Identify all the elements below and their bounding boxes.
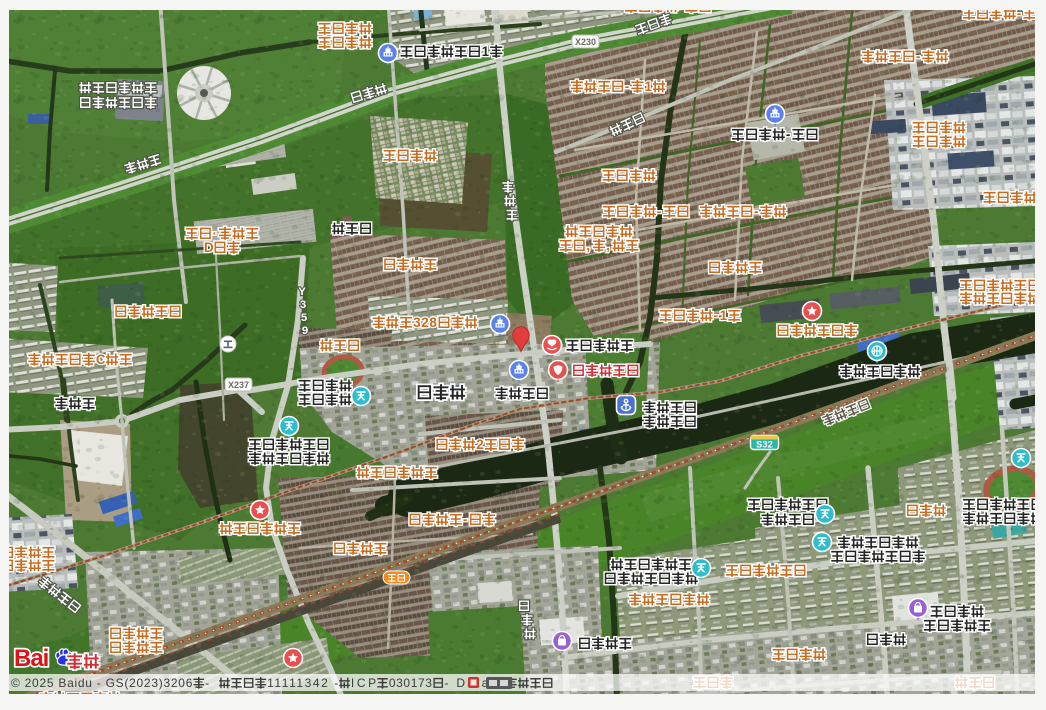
svg-text:1: 1 [482,44,490,59]
svg-text:5: 5 [301,312,308,324]
svg-text:2: 2 [476,437,484,452]
svg-text:-: - [657,204,662,219]
svg-text:X230: X230 [575,37,596,47]
svg-text:,: , [606,238,610,253]
svg-text:·: · [213,226,218,241]
svg-text:Y: Y [298,286,306,298]
svg-text:Bai: Bai [14,645,48,672]
svg-text:S32: S32 [756,440,773,451]
svg-text:3: 3 [300,299,306,311]
svg-text:328: 328 [413,315,437,330]
svg-text:-: - [205,676,209,690]
svg-text:9: 9 [302,325,308,337]
svg-text:,: , [586,238,590,253]
svg-text:X237: X237 [228,380,249,390]
svg-text:D: D [204,240,214,255]
svg-text:-: - [463,512,468,527]
svg-text:030173: 030173 [389,676,432,690]
svg-text:-: - [625,79,630,94]
svg-text:-: - [754,204,759,219]
svg-text:-: - [786,127,791,142]
svg-text:© 2025 Baidu - GS(2023)3206: © 2025 Baidu - GS(2023)3206 [11,676,193,690]
svg-text:C: C [96,352,106,367]
svg-text:-1: -1 [714,308,728,323]
svg-text:11111342 -: 11111342 - [267,676,338,690]
svg-text:-: - [916,49,921,64]
svg-text:1: 1 [645,79,653,94]
